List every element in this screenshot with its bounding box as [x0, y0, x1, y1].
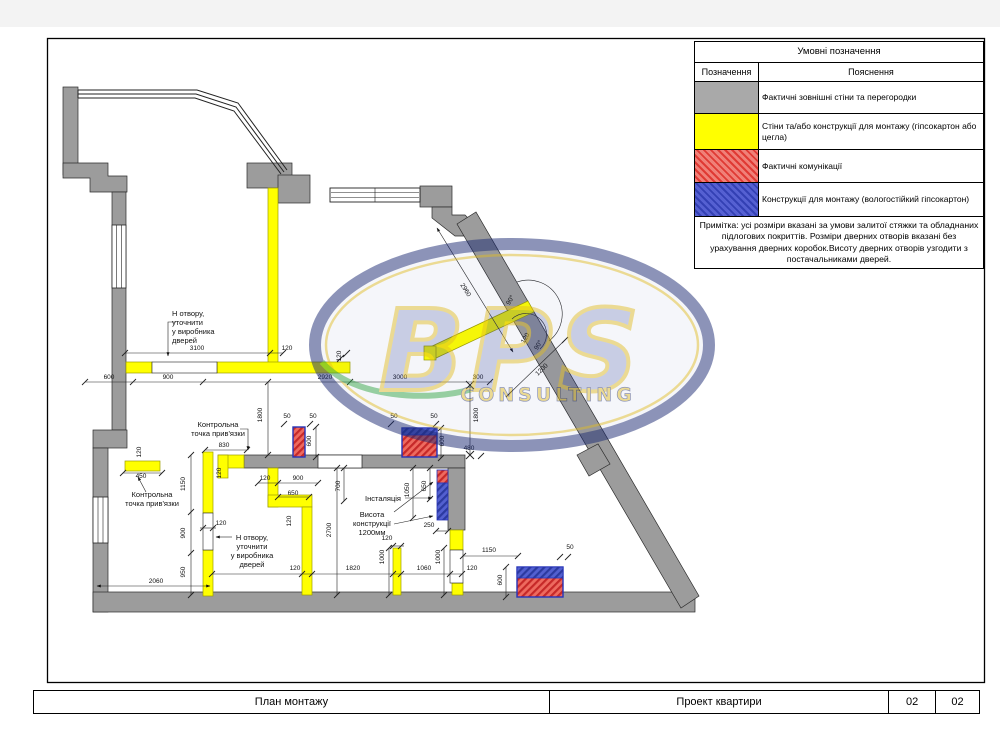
dim-label: 1000: [379, 549, 386, 564]
watermark-logo: BPS CONSULTING: [315, 244, 709, 446]
legend-row-label: Конструкції для монтажу (вологостійкий г…: [759, 183, 983, 216]
gray-wall-swatch: [695, 82, 759, 113]
dim-label: 120: [260, 475, 271, 482]
dim-label: 600: [306, 435, 313, 446]
dim-label: 1820: [346, 565, 361, 572]
page: 3100120120600900292030003001800180048029…: [0, 0, 1000, 750]
yellow-wall-swatch: [695, 114, 759, 149]
plan-note: Висотаконструкції1200мм: [353, 510, 392, 537]
dim-label: 450: [136, 473, 147, 480]
dim-label: 650: [288, 490, 299, 497]
title-block: План монтажу Проект квартири 02 02: [33, 690, 980, 714]
dim-label: 120: [467, 565, 478, 572]
project-title: Проект квартири: [550, 691, 889, 713]
legend-row-blue: Конструкції для монтажу (вологостійкий г…: [695, 183, 983, 217]
dim-label: 1000: [435, 549, 442, 564]
page-number: 02: [936, 691, 979, 713]
dim-label: 950: [180, 566, 187, 577]
dim-label: 1150: [482, 547, 496, 554]
dim-label: 50: [309, 413, 317, 420]
sheet-number: 02: [889, 691, 936, 713]
legend-row-gray: Фактичні зовнішні стіни та перегородки: [695, 82, 983, 114]
legend-table: Умовні позначення Позначення Пояснення Ф…: [694, 41, 984, 269]
dim-label: 1800: [257, 407, 264, 422]
dim-label: 900: [180, 527, 187, 538]
plan-note: Н отвору,уточнитиу виробникадверей: [172, 309, 215, 345]
dim-label: 900: [163, 374, 174, 381]
dim-label: 700: [335, 480, 342, 491]
dim-label: 830: [219, 442, 230, 449]
dim-label: 1060: [417, 565, 432, 572]
dim-label: 120: [282, 345, 293, 352]
dim-label: 120: [216, 467, 223, 478]
dim-label: 2700: [326, 522, 333, 537]
dim-label: 120: [290, 565, 301, 572]
dim-label: 3100: [190, 345, 205, 352]
legend-row-label: Фактичні комунікації: [759, 150, 983, 182]
legend-col-symbol: Позначення: [695, 63, 759, 81]
legend-header-row: Позначення Пояснення: [695, 63, 983, 82]
dim-label: 250: [424, 522, 435, 529]
plan-note: Контрольнаточка прив'язки: [191, 420, 245, 438]
red-hatch-swatch: [695, 150, 759, 182]
plan-note: Інсталяція: [365, 494, 401, 503]
legend-row-yellow: Стіни та/або конструкції для монтажу (гі…: [695, 114, 983, 150]
dim-label: 650: [421, 480, 428, 491]
legend-row-label: Фактичні зовнішні стіни та перегородки: [759, 82, 983, 113]
dim-label: 50: [283, 413, 291, 420]
legend-row-red: Фактичні комунікації: [695, 150, 983, 183]
legend-col-description: Пояснення: [759, 63, 983, 81]
dim-label: 600: [104, 374, 115, 381]
dim-label: 120: [216, 520, 227, 527]
drawing-title: План монтажу: [34, 691, 550, 713]
legend-note: Примітка: усі розміри вказані за умови з…: [695, 217, 983, 268]
dim-label: 50: [566, 544, 574, 551]
dim-label: 120: [286, 515, 293, 526]
dim-label: 1050: [404, 482, 411, 497]
blue-hatch-swatch: [695, 183, 759, 216]
legend-title: Умовні позначення: [695, 42, 983, 63]
dim-label: 900: [293, 475, 304, 482]
dim-label: 1150: [180, 477, 187, 491]
plan-note: Контрольнаточка прив'язки: [125, 490, 179, 508]
dim-label: 600: [497, 574, 504, 585]
legend-row-label: Стіни та/або конструкції для монтажу (гі…: [759, 114, 983, 149]
dim-label: 2060: [149, 578, 164, 585]
watermark-subtitle: CONSULTING: [460, 384, 636, 406]
plan-note: Н отвору,уточнитиу виробникадверей: [231, 533, 274, 569]
dim-label: 120: [136, 446, 143, 457]
